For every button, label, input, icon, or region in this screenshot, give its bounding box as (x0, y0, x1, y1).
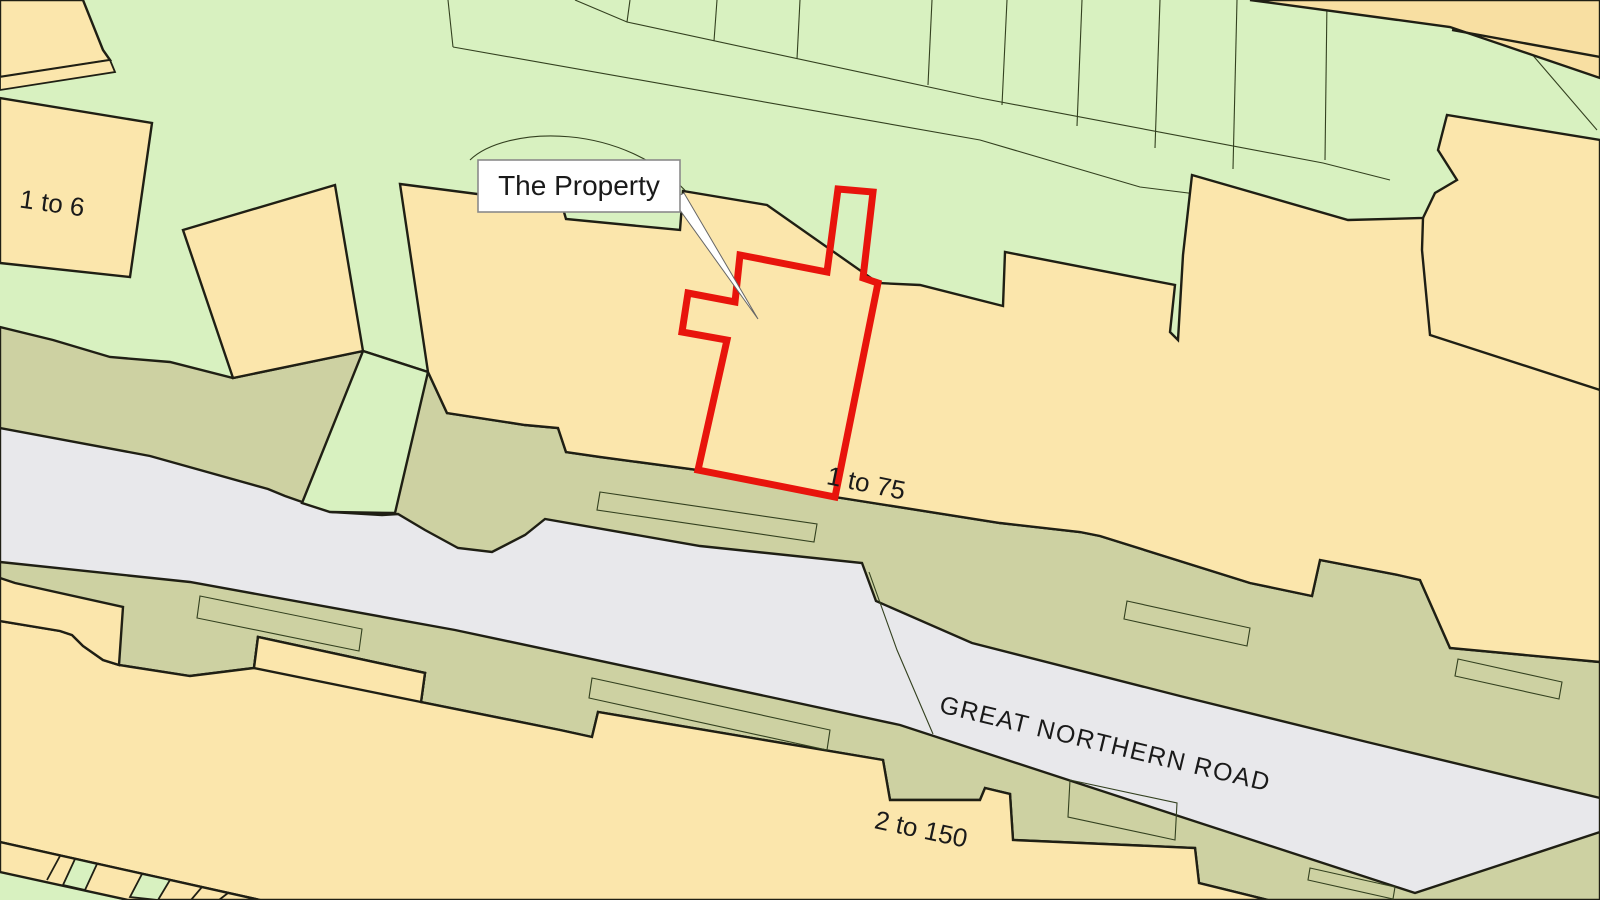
callout-label: The Property (498, 170, 660, 201)
title-plan-map: The Property 1 to 6 1 to 75 GREAT NORTHE… (0, 0, 1600, 900)
map-canvas: The Property 1 to 6 1 to 75 GREAT NORTHE… (0, 0, 1600, 900)
